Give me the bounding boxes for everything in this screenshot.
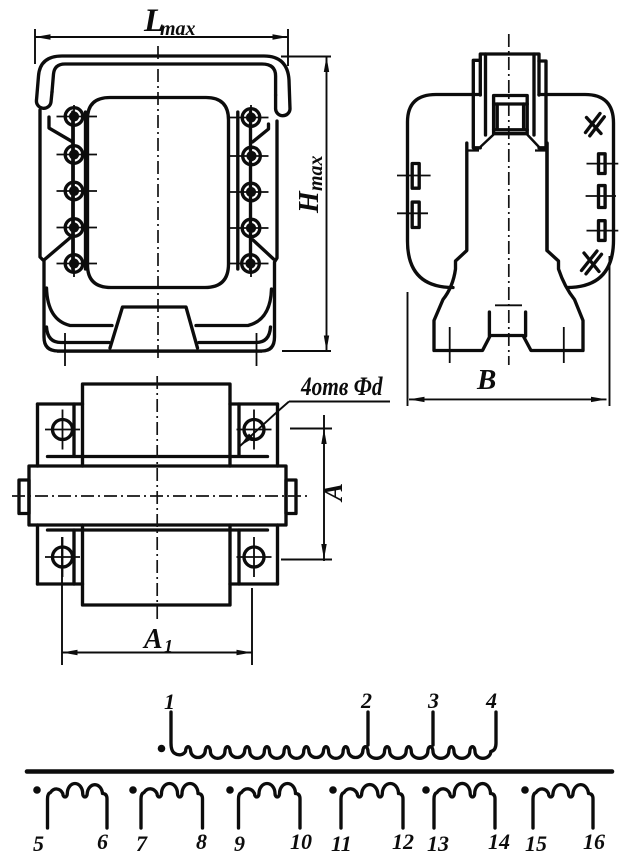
svg-text:4: 4: [485, 688, 497, 713]
svg-text:8: 8: [196, 829, 207, 854]
svg-text:4отв Фd: 4отв Фd: [300, 373, 383, 401]
svg-text:11: 11: [331, 831, 352, 856]
svg-text:1: 1: [164, 636, 173, 656]
svg-text:1: 1: [164, 689, 175, 714]
svg-text:6: 6: [97, 829, 108, 854]
svg-text:2: 2: [360, 688, 372, 713]
svg-text:16: 16: [583, 829, 605, 854]
svg-text:13: 13: [427, 831, 449, 856]
svg-text:9: 9: [234, 831, 245, 856]
svg-text:14: 14: [488, 829, 510, 854]
svg-text:12: 12: [392, 829, 414, 854]
svg-text:5: 5: [33, 831, 44, 856]
svg-text:A: A: [142, 624, 163, 655]
svg-text:3: 3: [427, 688, 439, 713]
svg-text:B: B: [476, 364, 496, 396]
svg-text:H: H: [294, 190, 325, 214]
svg-text:7: 7: [136, 831, 148, 856]
svg-text:max: max: [305, 155, 327, 191]
svg-text:15: 15: [525, 831, 547, 856]
svg-text:10: 10: [290, 829, 312, 854]
svg-text:A: A: [318, 483, 348, 503]
